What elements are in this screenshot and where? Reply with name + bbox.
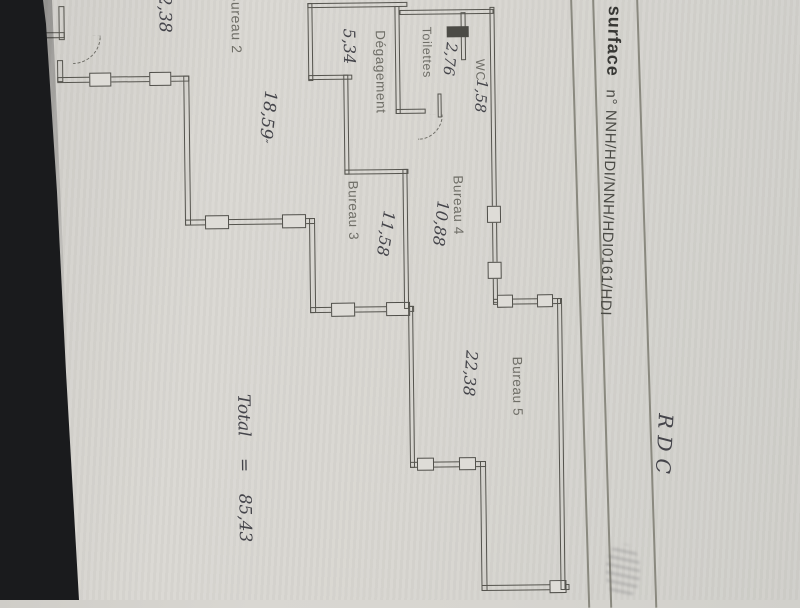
dimension-bureau5: 22,38 — [460, 350, 479, 397]
wall-segment — [396, 109, 426, 114]
wall-segment — [447, 26, 469, 37]
wall-segment — [402, 169, 409, 309]
dimension-wc: 1,58 — [472, 79, 489, 113]
floor-plan: Bureau 2 18,59″ 2,38 Bureau 3 11,58 Bure… — [0, 0, 800, 605]
equals-sign: = — [234, 458, 254, 472]
wall-segment — [343, 75, 349, 175]
dimension-bureau3: 11,58 — [374, 209, 397, 257]
window-marker — [149, 72, 171, 86]
window-marker — [487, 206, 501, 223]
room-label-bureau4: Bureau 4 — [451, 175, 465, 235]
dimension-bureau2: 18,59″ — [256, 90, 279, 144]
room-label-toilettes: Toilettes — [420, 27, 433, 78]
room-label-bureau2: Bureau 2 — [229, 0, 244, 54]
wall-segment — [183, 76, 191, 226]
total-value: 85,43 — [234, 494, 255, 543]
window-marker — [497, 295, 513, 308]
faded-stamp — [606, 544, 640, 598]
wall-segment — [394, 6, 400, 114]
window-marker — [459, 457, 476, 470]
dimension-mark: ″ — [257, 138, 270, 144]
window-marker — [417, 458, 434, 471]
total-label: Total — [233, 394, 254, 437]
wall-segment — [307, 3, 313, 81]
room-label-bureau3: Bureau 3 — [346, 180, 360, 240]
wall-segment — [489, 7, 498, 303]
wall-segment — [309, 218, 316, 313]
room-label-degagement: Dégagement — [373, 30, 388, 113]
door-arc — [73, 36, 101, 64]
dimension-bureau4: 10,88 — [430, 200, 451, 247]
floor-code: RDC — [652, 413, 676, 481]
wall-segment — [557, 298, 566, 590]
window-marker — [205, 215, 229, 229]
wall-segment — [399, 9, 493, 15]
surface-label: surface — [603, 6, 625, 78]
wall-segment — [307, 2, 407, 8]
dimension-value: 18,59 — [255, 89, 280, 140]
window-marker — [331, 303, 355, 317]
dimension-edge: 2,38 — [155, 0, 172, 33]
wall-segment — [408, 306, 415, 468]
wall-segment — [480, 461, 488, 591]
total-annotation: Total = 85,43 — [234, 394, 253, 543]
window-marker — [488, 262, 502, 279]
wall-segment — [344, 169, 408, 175]
window-marker — [89, 73, 111, 87]
window-marker — [282, 214, 306, 228]
window-marker — [537, 294, 553, 307]
room-label-bureau5: Bureau 5 — [510, 356, 524, 416]
dimension-degagement: 5,34 — [341, 29, 357, 65]
door-arc — [418, 114, 443, 139]
wall-segment — [45, 32, 65, 38]
dimension-toilettes: 2,76 — [440, 42, 459, 77]
room-label-wc: WC — [474, 59, 487, 81]
